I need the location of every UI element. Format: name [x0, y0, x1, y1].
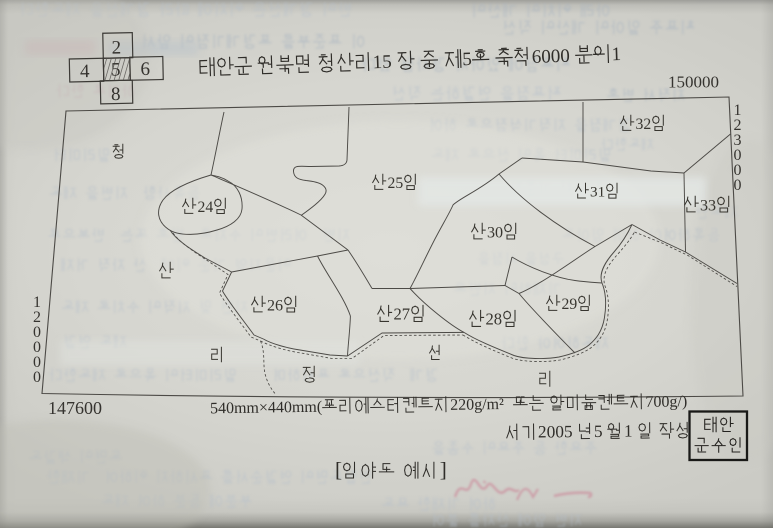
svg-text:5: 5 — [462, 49, 472, 70]
svg-text:5: 5 — [111, 59, 121, 80]
svg-text:540mm×440mm(: 540mm×440mm( — [210, 399, 322, 418]
svg-text:31: 31 — [590, 183, 605, 200]
svg-text:28: 28 — [486, 310, 503, 329]
svg-text:33: 33 — [700, 197, 716, 214]
svg-text:25: 25 — [388, 175, 404, 192]
svg-text:150000: 150000 — [668, 73, 719, 92]
svg-text:1: 1 — [611, 44, 621, 65]
svg-text:2005: 2005 — [538, 422, 573, 441]
svg-text:15: 15 — [372, 52, 392, 74]
svg-text:220g/m²: 220g/m² — [450, 396, 504, 414]
svg-text:0: 0 — [33, 369, 41, 386]
svg-text:32: 32 — [636, 116, 652, 133]
svg-text:]: ] — [440, 457, 447, 481]
svg-text:[: [ — [335, 457, 342, 481]
svg-text:6000: 6000 — [531, 46, 570, 68]
svg-text:29: 29 — [562, 296, 578, 313]
svg-text:700g/): 700g/) — [645, 393, 687, 411]
svg-text:24: 24 — [198, 199, 214, 216]
svg-text:4: 4 — [80, 61, 90, 82]
svg-text:147600: 147600 — [48, 398, 102, 418]
svg-text:1: 1 — [624, 422, 633, 441]
svg-text:6: 6 — [140, 59, 150, 80]
svg-text:8: 8 — [111, 84, 121, 105]
svg-text:5: 5 — [594, 422, 603, 441]
svg-text:30: 30 — [487, 224, 503, 241]
svg-text:0: 0 — [734, 177, 742, 194]
svg-text:26: 26 — [267, 297, 283, 314]
svg-text:2: 2 — [111, 37, 121, 58]
svg-text:27: 27 — [394, 305, 411, 324]
